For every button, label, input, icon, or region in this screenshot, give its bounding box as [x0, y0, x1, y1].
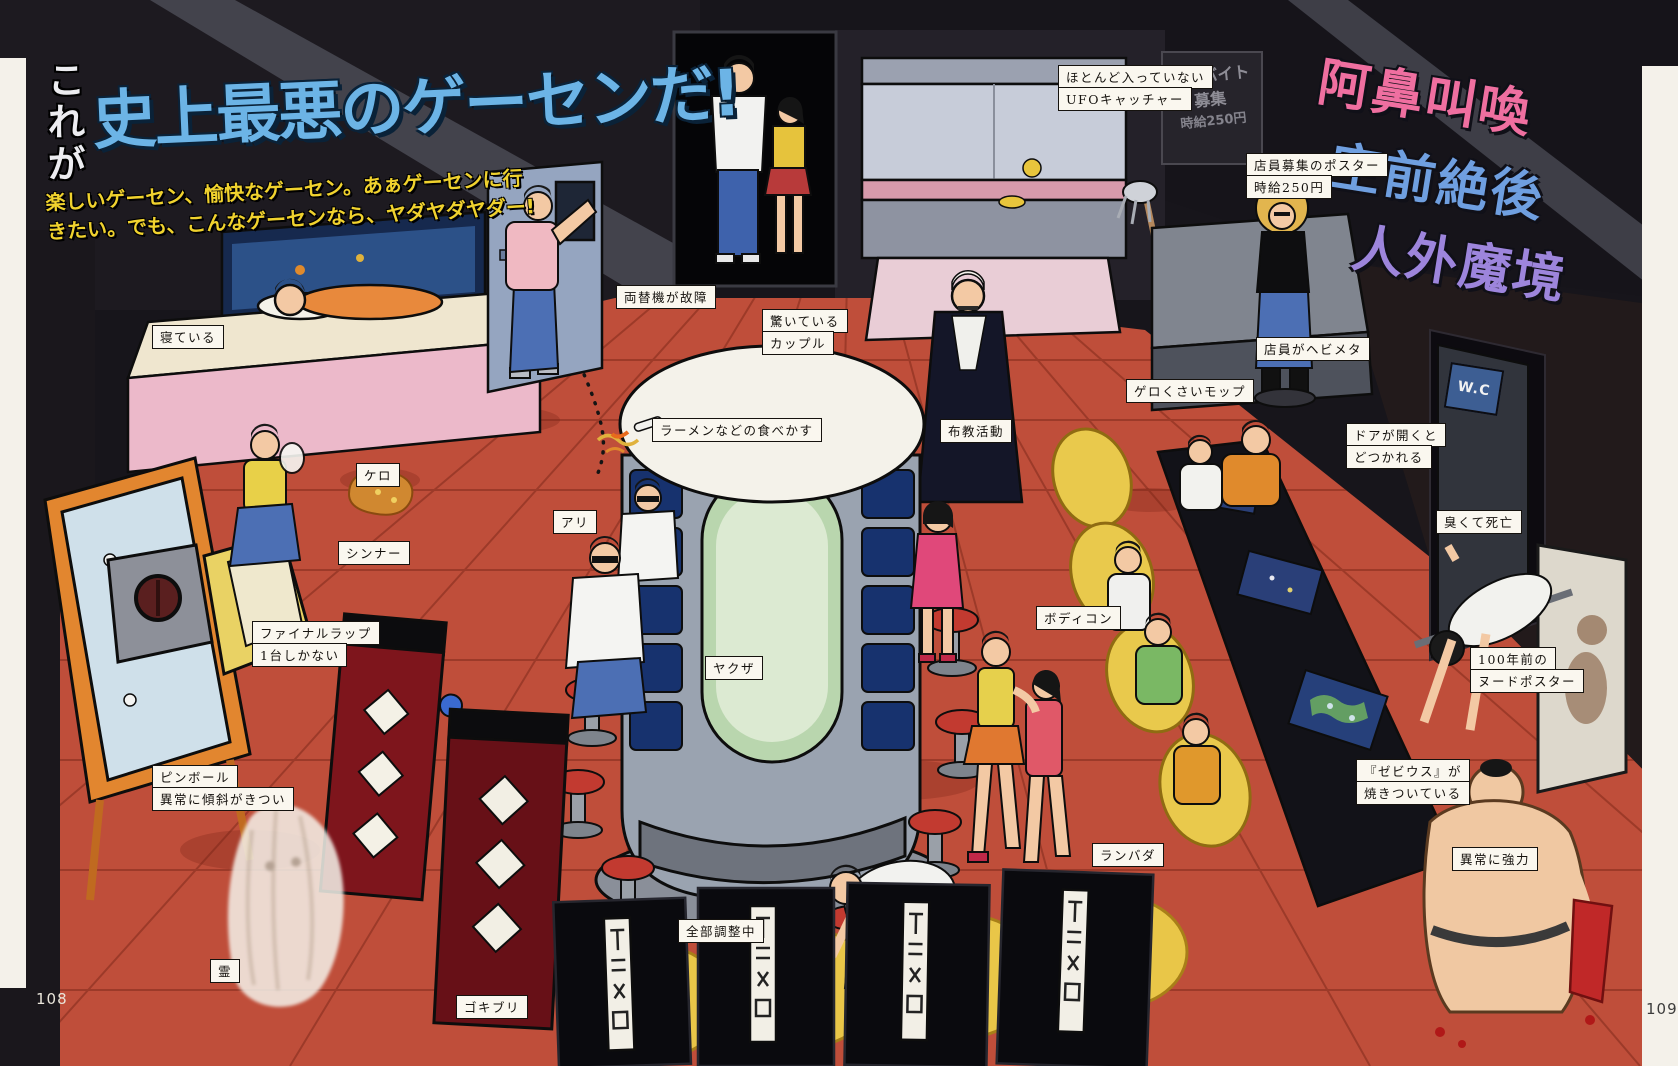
page-number-right: 109: [1646, 1000, 1678, 1018]
magazine-spread: 108 109 これが 史上最悪のゲーセンだ! 楽しいゲーセン、愉快なゲーセン。…: [0, 0, 1678, 1066]
page-edge-right: [1642, 66, 1678, 1066]
arcade-illustration: [0, 0, 1678, 1066]
ghost-figure: [228, 804, 344, 1007]
vomit-puddle: [349, 470, 412, 515]
recruiting-poster-text: アルバイト 募集 時給250円: [1169, 60, 1255, 135]
bottom-cabinets: [553, 869, 1153, 1066]
central-pod-machine: [596, 346, 948, 928]
page-edge-left: [0, 58, 26, 988]
ufo-catcher: [862, 58, 1126, 340]
nude-poster-frame: [1538, 545, 1626, 792]
title-kicker: これが: [36, 60, 91, 186]
wc-sign: W.C: [1444, 362, 1505, 416]
page-number-left: 108: [36, 990, 68, 1008]
